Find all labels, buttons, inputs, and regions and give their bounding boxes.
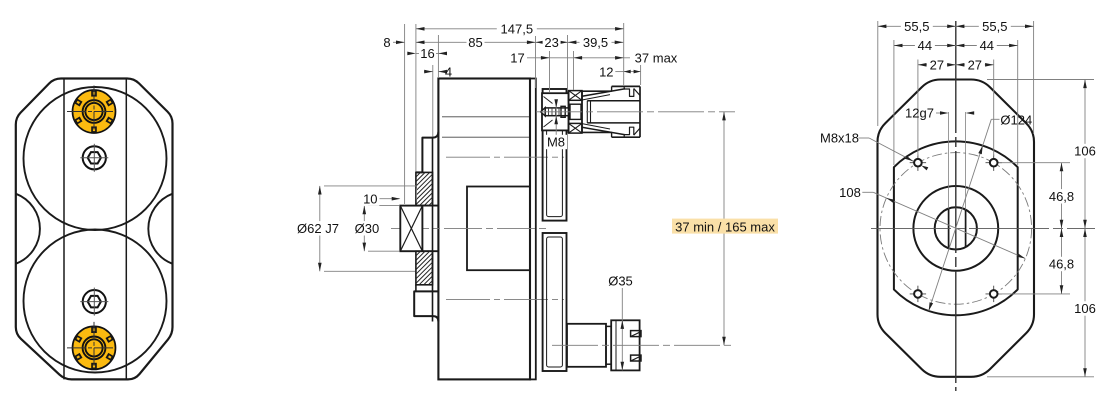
svg-text:Ø124: Ø124 (1000, 112, 1032, 127)
svg-text:Ø30: Ø30 (355, 221, 380, 236)
svg-text:37 min / 165 max: 37 min / 165 max (675, 219, 775, 234)
svg-text:44: 44 (918, 38, 932, 53)
svg-text:37 max: 37 max (635, 51, 678, 66)
svg-text:M8: M8 (547, 135, 565, 150)
svg-text:M8x18: M8x18 (820, 131, 859, 146)
svg-text:39,5: 39,5 (583, 35, 608, 50)
svg-text:8: 8 (383, 35, 390, 50)
svg-text:10: 10 (363, 191, 377, 206)
svg-text:46,8: 46,8 (1049, 257, 1074, 272)
svg-text:Ø62 J7: Ø62 J7 (297, 221, 339, 236)
svg-text:44: 44 (980, 38, 994, 53)
svg-text:106: 106 (1074, 144, 1096, 159)
svg-text:46,8: 46,8 (1049, 189, 1074, 204)
svg-text:23: 23 (544, 35, 558, 50)
svg-text:85: 85 (468, 35, 482, 50)
svg-text:55,5: 55,5 (904, 19, 929, 34)
svg-text:106: 106 (1074, 301, 1096, 316)
svg-text:4: 4 (445, 64, 452, 79)
svg-text:108: 108 (839, 185, 861, 200)
svg-text:Ø35: Ø35 (608, 274, 633, 289)
svg-text:17: 17 (510, 51, 524, 66)
svg-text:55,5: 55,5 (982, 19, 1007, 34)
svg-text:27: 27 (968, 58, 982, 73)
svg-text:12g7: 12g7 (905, 106, 934, 121)
svg-text:27: 27 (930, 58, 944, 73)
svg-text:147,5: 147,5 (501, 22, 534, 37)
svg-text:16: 16 (420, 46, 434, 61)
svg-text:12: 12 (599, 64, 613, 79)
